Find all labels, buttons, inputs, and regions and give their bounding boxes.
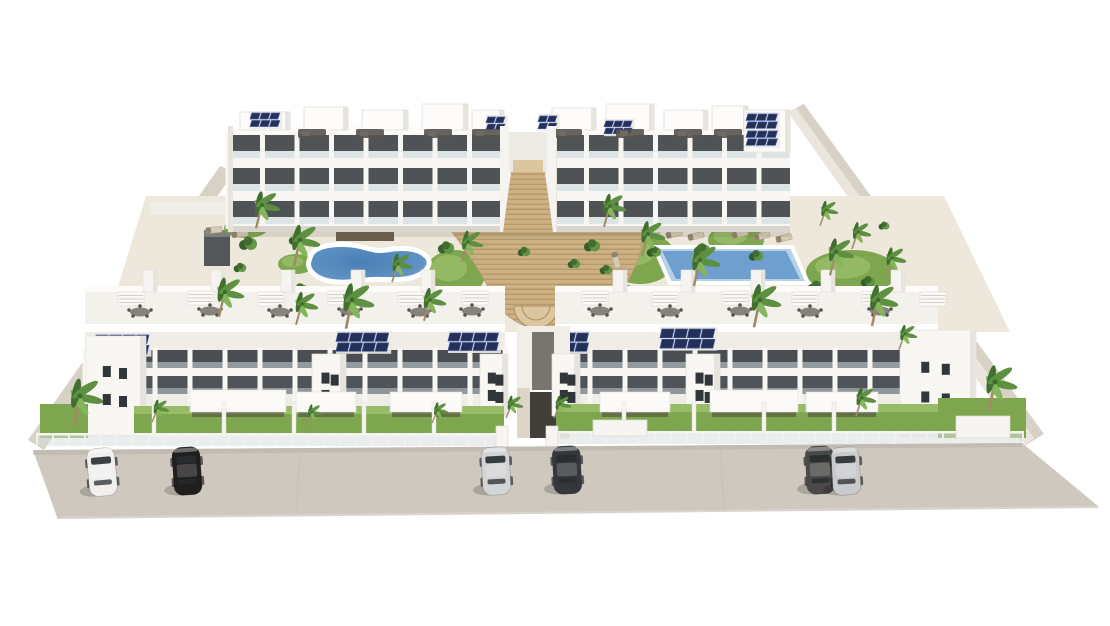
bush-foliage bbox=[521, 247, 527, 253]
fence-post bbox=[766, 431, 768, 444]
pergola-box bbox=[722, 291, 748, 305]
solar-panel bbox=[260, 113, 270, 119]
terrace-chair bbox=[418, 304, 422, 308]
roof-terrace-floor bbox=[85, 292, 505, 326]
fence-post bbox=[574, 431, 576, 444]
tower-window bbox=[331, 375, 339, 386]
solar-panel bbox=[448, 343, 461, 351]
fence-post bbox=[782, 431, 784, 444]
fence-post bbox=[926, 431, 928, 444]
car-windshield bbox=[176, 455, 196, 463]
solar-panel bbox=[687, 329, 701, 338]
solar-panel bbox=[270, 113, 280, 119]
terrace-chair bbox=[359, 307, 363, 311]
terrace-chair bbox=[459, 307, 463, 311]
solar-panel bbox=[756, 139, 767, 145]
terrace-chair bbox=[867, 307, 871, 311]
terrace-chair bbox=[197, 307, 201, 311]
roof-terrace-furniture-detail bbox=[428, 131, 436, 136]
solar-panel bbox=[270, 121, 280, 127]
tower-window bbox=[119, 396, 127, 407]
solar-panel bbox=[473, 333, 486, 341]
ground-shadow bbox=[228, 226, 505, 232]
solar-panel bbox=[362, 333, 376, 341]
fence-post bbox=[164, 433, 166, 446]
solar-panel bbox=[473, 343, 486, 351]
terrace-chair bbox=[657, 308, 661, 312]
terrace-chair bbox=[201, 313, 205, 317]
terrace-chair bbox=[801, 314, 805, 318]
car-roof-light bbox=[810, 462, 831, 476]
garden-divider-wall bbox=[692, 402, 696, 434]
terrace-chair bbox=[477, 313, 481, 317]
car-roof-light bbox=[177, 463, 198, 477]
solar-panel bbox=[622, 121, 632, 127]
garden-divider-wall bbox=[832, 402, 836, 434]
tower-window bbox=[488, 390, 496, 401]
roof-box-shade bbox=[785, 110, 790, 152]
solar-panel-array bbox=[746, 112, 780, 131]
fence-post bbox=[372, 433, 374, 446]
facade-mullion bbox=[153, 348, 158, 408]
solar-panel bbox=[486, 124, 496, 130]
glass-fence bbox=[36, 433, 498, 446]
ground-shadow bbox=[552, 226, 790, 232]
roof-terrace-furniture-detail bbox=[718, 131, 726, 136]
roof-box-shade bbox=[403, 110, 408, 130]
fence-post bbox=[702, 431, 704, 444]
solar-panel bbox=[375, 343, 389, 351]
car-roof-light bbox=[486, 463, 507, 477]
gate-wall bbox=[956, 416, 1010, 438]
terrace-chair bbox=[731, 313, 735, 317]
terrace-canopy bbox=[600, 392, 670, 417]
tower-window bbox=[567, 375, 575, 386]
palm-crown bbox=[857, 231, 860, 234]
car-windshield bbox=[809, 454, 829, 462]
tower-window bbox=[560, 373, 568, 384]
balcony-mullion bbox=[467, 132, 472, 229]
solar-panel bbox=[746, 114, 757, 120]
palm-crown bbox=[559, 403, 561, 405]
solar-panel bbox=[767, 122, 778, 128]
solar-panel bbox=[767, 131, 778, 137]
fence-post bbox=[404, 433, 406, 446]
terrace-inner-wall bbox=[85, 324, 505, 332]
terrace-canopy bbox=[296, 392, 356, 417]
car-rear-window bbox=[558, 478, 576, 484]
terrace-inner-wall bbox=[555, 324, 938, 332]
apartment-complex-render bbox=[0, 0, 1110, 626]
fence-post bbox=[52, 433, 54, 446]
balcony-mullion bbox=[398, 132, 403, 229]
roof-box-shade bbox=[591, 108, 596, 130]
solar-panel bbox=[756, 131, 767, 137]
solar-panel bbox=[701, 339, 715, 348]
terrace-chair bbox=[605, 313, 609, 317]
fence-post bbox=[1022, 431, 1024, 444]
roof-box-shade bbox=[463, 104, 468, 130]
terrace-chair bbox=[341, 313, 345, 317]
palm-crown bbox=[466, 240, 469, 243]
terrace-canopy bbox=[710, 390, 798, 417]
solar-panel bbox=[538, 116, 548, 122]
alley-upper-shadow bbox=[532, 332, 554, 390]
terrace-chair bbox=[149, 308, 153, 312]
fence-post bbox=[116, 433, 118, 446]
terrace-chair bbox=[208, 303, 212, 307]
car-windshield bbox=[556, 454, 576, 462]
bush-foliage bbox=[881, 222, 886, 227]
fence-post bbox=[484, 433, 486, 446]
palm-crown bbox=[834, 250, 838, 254]
roof-terrace-furniture-detail bbox=[476, 131, 484, 136]
solar-panel bbox=[336, 343, 350, 351]
fence-post bbox=[212, 433, 214, 446]
terrace-chair bbox=[289, 308, 293, 312]
terrace-chair bbox=[407, 308, 411, 312]
solar-panel bbox=[660, 339, 674, 348]
tower-window bbox=[119, 368, 127, 379]
terrace-chair bbox=[797, 308, 801, 312]
roof-box bbox=[422, 104, 468, 130]
terrace-chair bbox=[675, 314, 679, 318]
car-roof-light bbox=[91, 464, 112, 479]
palm-crown bbox=[260, 203, 264, 207]
palm-crown bbox=[511, 403, 513, 405]
facade-mullion bbox=[363, 348, 368, 408]
tower-window bbox=[921, 362, 929, 373]
gate-wall bbox=[546, 426, 558, 448]
fence-post bbox=[276, 433, 278, 446]
roof-box bbox=[664, 110, 708, 130]
roof-box bbox=[712, 106, 748, 130]
fence-post bbox=[100, 433, 102, 446]
architectural-render-canvas bbox=[0, 0, 1110, 626]
solar-panel bbox=[674, 329, 688, 338]
car-windshield bbox=[485, 455, 505, 463]
terrace-chair bbox=[819, 308, 823, 312]
solar-panel bbox=[448, 333, 461, 341]
fence-post bbox=[468, 433, 470, 446]
car-rear-window bbox=[837, 479, 855, 485]
stair-tower-shade bbox=[901, 270, 905, 292]
terrace-chair bbox=[598, 303, 602, 307]
fence-post bbox=[654, 431, 656, 444]
fence-post bbox=[798, 431, 800, 444]
palm-crown bbox=[646, 232, 650, 236]
palm-crown bbox=[904, 333, 907, 336]
fence-post bbox=[132, 433, 134, 446]
palm-crown bbox=[437, 409, 439, 411]
solar-panel bbox=[486, 117, 496, 123]
palm-crown bbox=[350, 298, 355, 303]
palm-crown bbox=[77, 393, 82, 398]
terrace-chair bbox=[808, 304, 812, 308]
balcony-mullion bbox=[688, 132, 693, 229]
bush-foliage bbox=[588, 239, 596, 247]
pergola-box bbox=[258, 292, 284, 306]
bush-foliage bbox=[864, 276, 871, 283]
solar-panel bbox=[461, 343, 474, 351]
terrace-chair bbox=[470, 303, 474, 307]
palm-crown bbox=[428, 298, 432, 302]
solar-panel bbox=[260, 121, 270, 127]
bush-foliage bbox=[752, 250, 759, 257]
terrace-chair bbox=[271, 314, 275, 318]
roof-box bbox=[304, 107, 348, 130]
roof-terrace-furniture-detail bbox=[558, 131, 566, 136]
stair-tower-shade bbox=[623, 270, 627, 292]
pergola-box bbox=[398, 292, 424, 306]
terrace-chair bbox=[815, 314, 819, 318]
bush-foliage bbox=[244, 237, 253, 246]
canopy-roof bbox=[710, 390, 798, 412]
gap-landing bbox=[513, 160, 543, 174]
lower-roof-fascia bbox=[555, 332, 938, 350]
solar-panel bbox=[486, 333, 499, 341]
grass-bed-highlight bbox=[282, 256, 304, 267]
palm-crown bbox=[223, 290, 227, 294]
pergola-box bbox=[118, 292, 144, 306]
car-rear-window bbox=[487, 479, 505, 485]
terrace-chair bbox=[337, 307, 341, 311]
roof-box bbox=[362, 110, 408, 130]
solar-panel bbox=[250, 113, 260, 119]
solar-panel bbox=[746, 131, 757, 137]
garden-divider-wall bbox=[292, 402, 296, 434]
balcony-mullion bbox=[295, 132, 300, 229]
roof-terrace-furniture-detail bbox=[302, 131, 310, 136]
facade-mullion bbox=[468, 348, 473, 408]
palm-crown bbox=[758, 298, 763, 303]
palm-crown bbox=[300, 302, 304, 306]
tower-window bbox=[322, 373, 330, 384]
pergola-box bbox=[462, 291, 488, 305]
terrace-chair bbox=[131, 314, 135, 318]
palm-crown bbox=[396, 262, 399, 265]
solar-panel bbox=[660, 329, 674, 338]
kidney-pool bbox=[309, 245, 430, 283]
fence-post bbox=[68, 433, 70, 446]
fence-post bbox=[324, 433, 326, 446]
fence-post bbox=[180, 433, 182, 446]
terrace-chair bbox=[481, 307, 485, 311]
terrace-chair bbox=[661, 314, 665, 318]
fence-post bbox=[244, 433, 246, 446]
solar-panel bbox=[362, 343, 376, 351]
fence-post bbox=[420, 433, 422, 446]
terrace-chair bbox=[587, 307, 591, 311]
terrace-chair bbox=[591, 313, 595, 317]
solar-panel-array bbox=[746, 129, 780, 148]
palm-crown bbox=[825, 209, 828, 212]
fence-post bbox=[942, 431, 944, 444]
fence-post bbox=[452, 433, 454, 446]
gap-staircase bbox=[503, 172, 553, 232]
terrace-chair bbox=[738, 303, 742, 307]
palm-crown bbox=[890, 256, 893, 259]
balcony-mullion bbox=[722, 132, 727, 229]
solar-panel-array bbox=[336, 331, 391, 354]
garden-divider-wall bbox=[762, 402, 766, 434]
stair-tower-shade bbox=[153, 270, 157, 292]
solar-panel bbox=[538, 123, 548, 129]
stair-tower-shade bbox=[431, 270, 435, 292]
terrace-canopy bbox=[190, 390, 286, 417]
tower-window bbox=[696, 390, 704, 401]
roof-box-shade bbox=[649, 104, 654, 130]
palm-crown bbox=[698, 258, 702, 262]
palm-crown bbox=[993, 380, 998, 385]
solar-panel-array bbox=[250, 111, 282, 129]
tower-window bbox=[567, 392, 575, 403]
roof-box-shade bbox=[343, 107, 348, 130]
fence-rail bbox=[36, 433, 498, 436]
pergola-box bbox=[652, 292, 678, 306]
canopy-roof bbox=[600, 392, 670, 412]
fence-post bbox=[846, 431, 848, 444]
gate-wall bbox=[593, 420, 647, 436]
terrace-chair bbox=[745, 313, 749, 317]
terrace-chair bbox=[609, 307, 613, 311]
terrace-chair bbox=[463, 313, 467, 317]
fence-post bbox=[734, 431, 736, 444]
solar-panel bbox=[674, 339, 688, 348]
fence-post bbox=[814, 431, 816, 444]
solar-panel bbox=[486, 343, 499, 351]
fence-post bbox=[148, 433, 150, 446]
solar-panel bbox=[604, 128, 614, 134]
solar-panel bbox=[495, 117, 505, 123]
solar-panel bbox=[349, 333, 363, 341]
canopy-roof bbox=[296, 392, 356, 412]
terrace-chair bbox=[889, 307, 893, 311]
solar-panel bbox=[756, 122, 767, 128]
roof-box-shade bbox=[285, 112, 290, 130]
grass-bed-highlight bbox=[431, 255, 467, 281]
solar-panel bbox=[575, 343, 589, 351]
fence-post bbox=[718, 431, 720, 444]
solar-panel bbox=[687, 339, 701, 348]
tower-window bbox=[103, 394, 111, 405]
solar-panel bbox=[746, 139, 757, 145]
fence-post bbox=[670, 431, 672, 444]
fence-post bbox=[36, 433, 38, 446]
garden-divider-wall bbox=[222, 402, 226, 434]
palm-crown bbox=[157, 407, 159, 409]
solar-panel-array bbox=[660, 327, 717, 351]
palm-crown bbox=[311, 411, 313, 413]
bush-foliage bbox=[603, 265, 609, 271]
solar-panel-array bbox=[448, 331, 501, 353]
fence-post bbox=[292, 433, 294, 446]
garden-divider-wall bbox=[362, 402, 366, 434]
balcony-mullion bbox=[584, 132, 589, 229]
fence-post bbox=[260, 433, 262, 446]
roof-terrace-furniture-detail bbox=[678, 131, 686, 136]
solar-panel bbox=[756, 114, 767, 120]
fence-glass bbox=[36, 435, 498, 446]
terrace-chair bbox=[727, 307, 731, 311]
palm-crown bbox=[608, 204, 612, 208]
fence-post bbox=[750, 431, 752, 444]
fence-post bbox=[356, 433, 358, 446]
pergola-box bbox=[792, 292, 818, 306]
central-gap-stairs bbox=[500, 126, 556, 232]
fence-post bbox=[196, 433, 198, 446]
bush-foliage bbox=[442, 241, 450, 249]
fence-post bbox=[84, 433, 86, 446]
fence-post bbox=[590, 431, 592, 444]
car-roof-light bbox=[836, 463, 857, 477]
sun-lounger bbox=[206, 226, 223, 234]
solar-panel bbox=[613, 121, 623, 127]
fence-post bbox=[894, 431, 896, 444]
terrace-chair bbox=[885, 313, 889, 317]
fence-post bbox=[228, 433, 230, 446]
palm-crown bbox=[860, 396, 863, 399]
gate-wall bbox=[496, 426, 508, 448]
tower-window bbox=[495, 375, 503, 386]
balcony-mullion bbox=[364, 132, 369, 229]
tower-window bbox=[103, 366, 111, 377]
roof-box-shade bbox=[703, 110, 708, 130]
solar-panel bbox=[336, 333, 350, 341]
facade-slab bbox=[555, 368, 938, 376]
fence-post bbox=[308, 433, 310, 446]
lounger-back bbox=[206, 227, 212, 233]
solar-panel bbox=[547, 116, 557, 122]
bush-foliage bbox=[237, 263, 243, 269]
tower-window bbox=[488, 373, 496, 384]
terrace-chair bbox=[278, 304, 282, 308]
solar-panel bbox=[604, 121, 614, 127]
balcony-mullion bbox=[653, 132, 658, 229]
pergola-box bbox=[920, 292, 946, 306]
solar-panel bbox=[746, 122, 757, 128]
roof-terrace-furniture-detail bbox=[360, 131, 368, 136]
balcony-mullion bbox=[329, 132, 334, 229]
terrace-chair bbox=[127, 308, 131, 312]
terrace-chair bbox=[267, 308, 271, 312]
fence-post bbox=[862, 431, 864, 444]
roof-terrace-furniture-detail bbox=[620, 131, 628, 136]
stair-tower-shade bbox=[761, 270, 765, 292]
balcony-mullion bbox=[433, 132, 438, 229]
fence-post bbox=[388, 433, 390, 446]
terrace-canopy bbox=[806, 392, 878, 417]
terrace-chair bbox=[668, 304, 672, 308]
fence-post bbox=[686, 431, 688, 444]
solar-panel bbox=[701, 329, 715, 338]
solar-panel bbox=[767, 114, 778, 120]
solar-panel bbox=[349, 343, 363, 351]
terrace-canopy bbox=[390, 392, 462, 417]
stair-tower-shade bbox=[291, 270, 295, 292]
tower-window bbox=[495, 392, 503, 403]
canopy-roof bbox=[390, 392, 462, 412]
kidney-pool-water bbox=[309, 245, 430, 283]
facade-mullion bbox=[588, 348, 593, 408]
fence-post bbox=[910, 431, 912, 444]
solar-panel bbox=[250, 121, 260, 127]
pergola-box bbox=[188, 291, 214, 305]
solar-panel bbox=[375, 333, 389, 341]
terrace-chair bbox=[285, 314, 289, 318]
fence-post bbox=[878, 431, 880, 444]
car-rear-window bbox=[811, 478, 829, 484]
